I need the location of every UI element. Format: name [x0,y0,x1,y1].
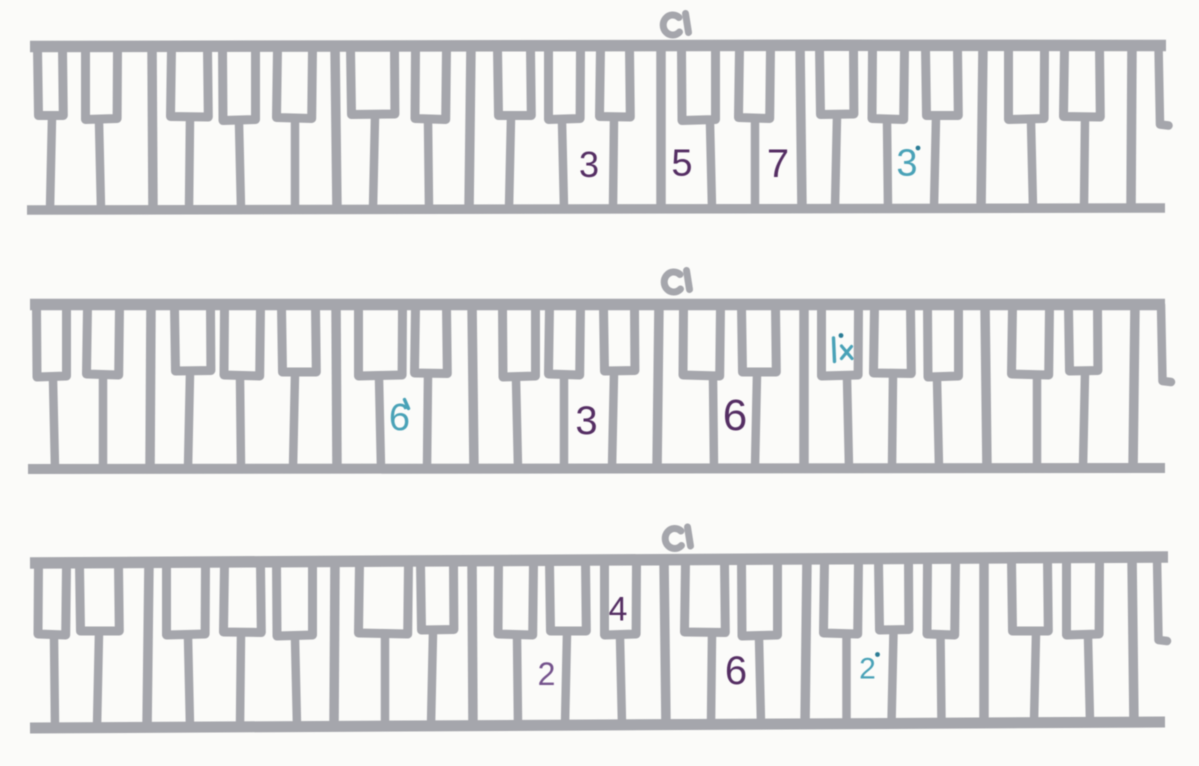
svg-text:3: 3 [575,399,597,443]
svg-text:7: 7 [767,142,789,186]
svg-text:2: 2 [859,653,876,686]
svg-text:2: 2 [538,656,556,692]
svg-text:5: 5 [671,143,692,185]
svg-text:4: 4 [609,591,628,629]
svg-text:3: 3 [579,144,599,185]
svg-text:6: 6 [725,649,747,693]
svg-text:3: 3 [896,143,917,185]
svg-text:6: 6 [723,391,747,440]
